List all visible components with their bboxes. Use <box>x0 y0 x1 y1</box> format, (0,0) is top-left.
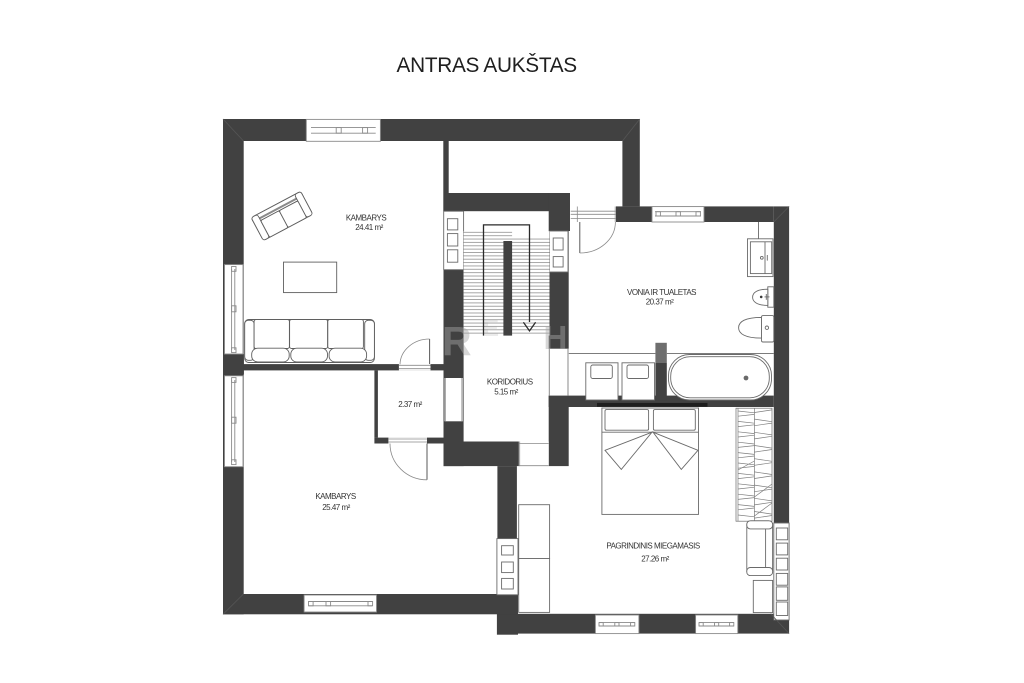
svg-text:25.47 m²: 25.47 m² <box>322 503 350 512</box>
svg-text:KAMBARYS: KAMBARYS <box>346 214 386 223</box>
svg-text:5.15 m²: 5.15 m² <box>494 387 518 396</box>
svg-text:KAMBARYS: KAMBARYS <box>315 492 355 501</box>
svg-text:KORIDORIUS: KORIDORIUS <box>487 377 533 386</box>
svg-text:24.41 m²: 24.41 m² <box>355 223 383 232</box>
svg-text:27.26 m²: 27.26 m² <box>641 555 669 564</box>
svg-text:PAGRINDINIS MIEGAMASIS: PAGRINDINIS MIEGAMASIS <box>606 542 699 551</box>
svg-text:VONIA IR TUALETAS: VONIA IR TUALETAS <box>627 288 696 297</box>
svg-text:R: R <box>442 318 472 364</box>
svg-text:H: H <box>544 319 568 356</box>
svg-text:2.37 m²: 2.37 m² <box>398 400 422 409</box>
svg-text:ANTRAS AUKŠTAS: ANTRAS AUKŠTAS <box>397 54 577 77</box>
svg-text:20.37 m²: 20.37 m² <box>646 298 674 307</box>
svg-text:E: E <box>483 315 499 342</box>
